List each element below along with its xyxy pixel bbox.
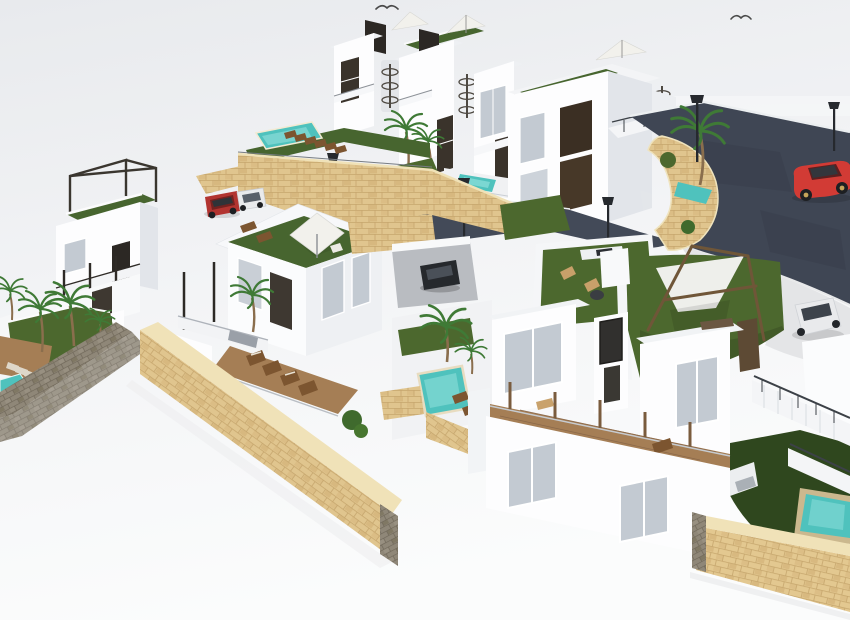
fire-pit — [590, 290, 604, 300]
render-image — [0, 0, 850, 620]
outdoor-kitchen — [600, 248, 630, 288]
timber-column — [737, 318, 760, 372]
stone-wall — [380, 386, 424, 420]
red-sports-car — [792, 161, 850, 203]
window-strip — [560, 100, 592, 158]
window-strip — [560, 154, 592, 212]
